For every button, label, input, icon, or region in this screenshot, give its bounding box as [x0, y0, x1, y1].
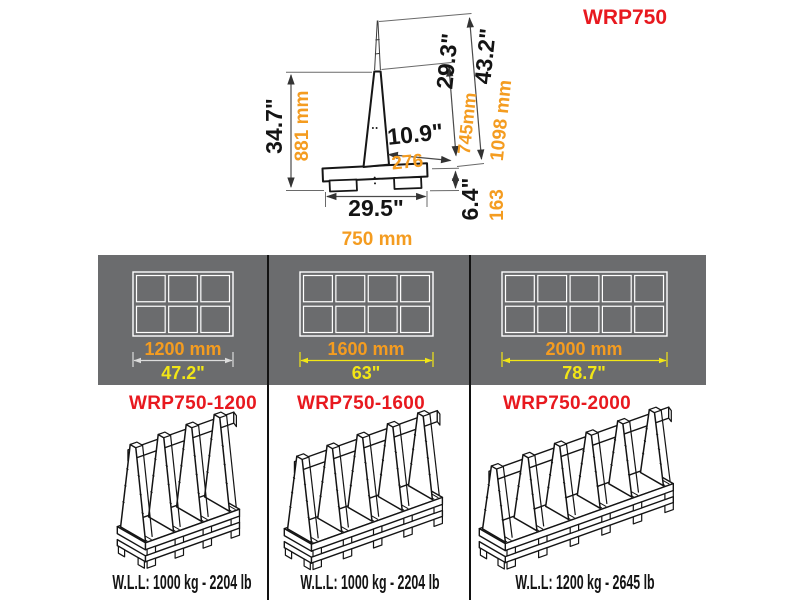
post-profile: [364, 72, 390, 168]
rack-isometric-drawing-2000: [473, 408, 685, 574]
rack-geometry: [117, 412, 239, 568]
top-view-inch-label: 47.2": [161, 363, 205, 383]
post-tip: [375, 21, 381, 71]
top-view-1200: 1200 mm 47.2": [98, 255, 268, 385]
product-title: WRP750: [583, 6, 667, 30]
top-view-mm-label: 1200 mm: [144, 339, 221, 359]
dim-height-inch: 34.7": [261, 98, 287, 154]
top-view-inch-label: 63": [352, 363, 381, 383]
top-view-2000: 2000 mm 78.7": [472, 255, 706, 385]
dim-height-mm: 881 mm: [292, 91, 313, 162]
rack-geometry: [479, 407, 673, 569]
left-foot: [330, 180, 358, 192]
dim-base-height-inch: 6.4": [457, 178, 483, 221]
wll-rating-2000: W.L.L: 1200 kg - 2645 lb: [515, 572, 654, 595]
top-view-mm-label: 2000 mm: [545, 339, 622, 359]
dim-ledge-inch: 10.9": [386, 118, 444, 150]
panel-divider: [469, 255, 471, 600]
dim-slant-inch: 29.3": [431, 32, 463, 90]
dim-slant-total-inch: 43.2": [469, 27, 501, 85]
wll-rating-1600: W.L.L: 1000 kg - 2204 lb: [300, 572, 439, 595]
top-view-mm-label: 1600 mm: [327, 339, 404, 359]
dim-slant-total-mm: 1098 mm: [487, 79, 516, 162]
dim-base-width-mm: 750 mm: [342, 229, 413, 250]
top-view-inch-label: 78.7": [562, 363, 606, 383]
rack-geometry: [284, 411, 442, 570]
wll-rating-1200: W.L.L: 1000 kg - 2204 lb: [112, 572, 251, 595]
right-foot: [394, 177, 422, 189]
cross-section-drawing: 34.7" 881 mm 43.2" 1098 mm 29.3" 745mm 1…: [250, 5, 520, 250]
dim-slant-mm: 745mm: [454, 91, 480, 155]
top-view-1600: 1600 mm 63": [270, 255, 470, 385]
dim-ledge-mm: 276: [391, 150, 425, 174]
rack-isometric-drawing-1600: [276, 410, 466, 574]
product-spec-sheet: WRP750: [0, 0, 800, 600]
rack-isometric-drawing-1200: [105, 410, 270, 574]
dim-base-height-mm: 163: [487, 189, 508, 221]
dim-base-width-inch: 29.5": [348, 195, 404, 221]
